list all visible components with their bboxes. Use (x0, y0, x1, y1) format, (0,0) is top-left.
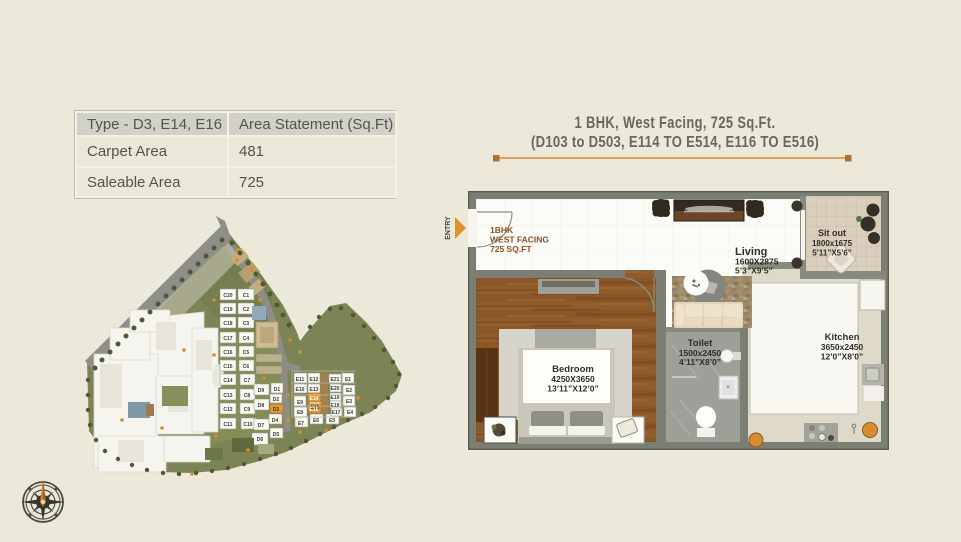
svg-text:C10: C10 (243, 422, 252, 428)
svg-text:C6: C6 (243, 364, 250, 370)
svg-text:C3: C3 (243, 321, 250, 327)
svg-text:C2: C2 (243, 307, 250, 313)
svg-text:E9: E9 (297, 400, 303, 406)
svg-text:E16: E16 (310, 407, 319, 413)
svg-text:ENTRY: ENTRY (445, 216, 452, 240)
svg-text:E5: E5 (329, 418, 335, 424)
svg-text:C12: C12 (223, 407, 232, 413)
svg-text:C18: C18 (223, 321, 232, 327)
svg-text:D4: D4 (272, 418, 279, 424)
svg-text:1800x1675: 1800x1675 (812, 239, 853, 248)
svg-text:D3: D3 (273, 407, 280, 413)
svg-text:E7: E7 (298, 421, 304, 427)
svg-text:E19: E19 (331, 395, 340, 401)
svg-text:5’11”X5’6”: 5’11”X5’6” (812, 249, 852, 258)
svg-text:13’11”X12’0”: 13’11”X12’0” (547, 384, 599, 394)
svg-text:E6: E6 (313, 418, 319, 424)
svg-text:C5: C5 (243, 350, 250, 356)
svg-text:D9: D9 (258, 388, 265, 394)
svg-text:12’0”X8’0”: 12’0”X8’0” (821, 352, 864, 362)
svg-text:D1: D1 (274, 387, 281, 393)
svg-text:5’3”X9’5”: 5’3”X9’5” (735, 266, 773, 276)
svg-text:C17: C17 (223, 336, 232, 342)
svg-text:E4: E4 (347, 410, 353, 416)
svg-text:C19: C19 (223, 307, 232, 313)
svg-text:D2: D2 (273, 397, 280, 403)
svg-text:D8: D8 (258, 403, 265, 409)
svg-text:C15: C15 (223, 364, 232, 370)
svg-text:E2: E2 (346, 388, 352, 394)
svg-text:C13: C13 (223, 393, 232, 399)
svg-text:4250X3650: 4250X3650 (551, 374, 595, 384)
svg-text:C9: C9 (244, 407, 251, 413)
svg-text:3650x2450: 3650x2450 (821, 342, 864, 352)
svg-text:725 SQ.FT: 725 SQ.FT (490, 244, 532, 254)
svg-text:4’11”X8’0”: 4’11”X8’0” (679, 357, 721, 367)
svg-text:Sit out: Sit out (818, 228, 846, 238)
svg-text:C1: C1 (243, 293, 250, 299)
svg-text:1BHK: 1BHK (490, 225, 514, 235)
svg-text:C11: C11 (224, 422, 233, 428)
svg-text:C16: C16 (223, 350, 232, 356)
svg-text:E14: E14 (310, 396, 319, 402)
svg-text:E1: E1 (345, 377, 351, 383)
svg-text:D5: D5 (273, 432, 280, 438)
svg-text:D6: D6 (257, 437, 264, 443)
svg-text:C14: C14 (223, 378, 232, 384)
svg-text:E12: E12 (310, 377, 319, 383)
svg-text:E21: E21 (331, 377, 340, 383)
svg-text:E3: E3 (346, 399, 352, 405)
svg-text:E13: E13 (310, 387, 319, 393)
svg-text:E17: E17 (332, 410, 341, 416)
svg-text:C7: C7 (244, 378, 251, 384)
svg-text:E11: E11 (296, 377, 305, 383)
svg-text:D7: D7 (258, 423, 265, 429)
svg-text:WEST FACING: WEST FACING (490, 235, 549, 245)
svg-text:C8: C8 (244, 393, 251, 399)
svg-text:C4: C4 (243, 336, 250, 342)
svg-text:E8: E8 (297, 410, 303, 416)
svg-text:C20: C20 (223, 293, 232, 299)
svg-text:E20: E20 (331, 386, 340, 392)
svg-text:E10: E10 (296, 387, 305, 393)
